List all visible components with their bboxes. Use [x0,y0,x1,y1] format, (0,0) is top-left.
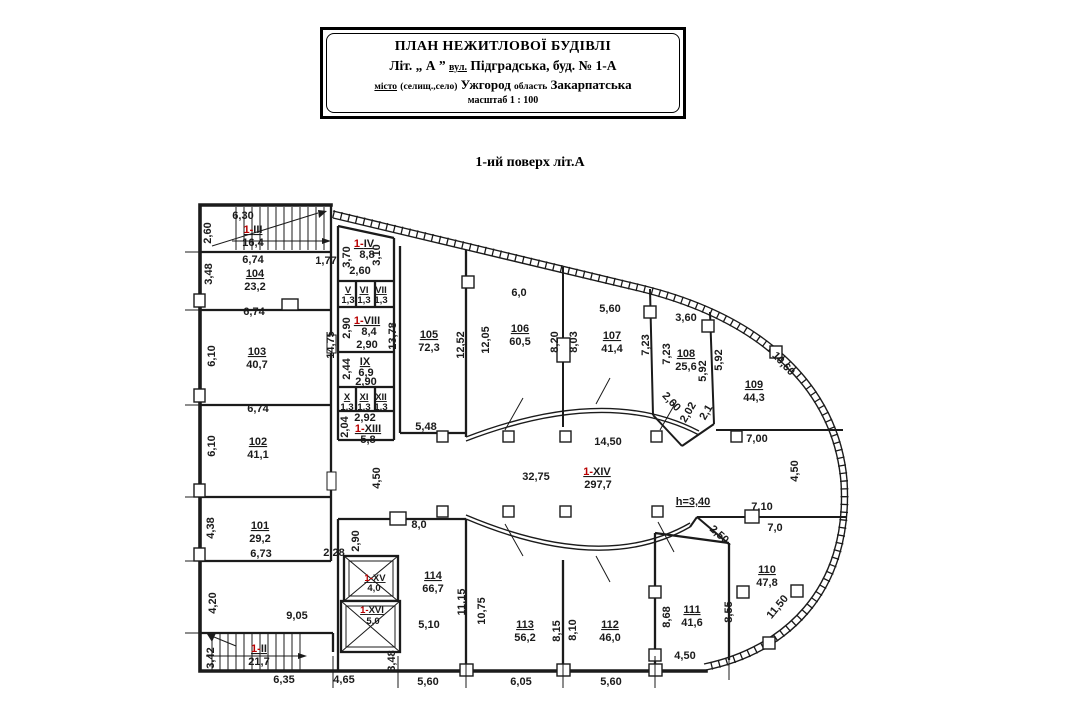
dim-label: 14,75 [325,331,337,359]
room-101-area: 29,2 [249,533,270,545]
cell-v-area: 1,3 [341,295,354,306]
hall-arc-walls [466,408,699,550]
dim-label: 2,90 [341,317,353,338]
column [652,506,663,517]
dim-label: 13,78 [387,322,399,350]
dim-label: 7,00 [746,433,767,445]
ceiling-height-note: h=3,40 [676,496,711,508]
room-106-number: 106 [511,323,529,335]
glazed-facade-lines [333,211,847,670]
dim-label: 8,10 [567,619,579,640]
dim-label: 2,60 [202,222,214,243]
hall-1-xiv-number: 1-XIV [583,466,611,478]
dim-label: 11,50 [764,593,790,621]
stair3-arrow-lines [212,213,322,246]
room-109-number: 109 [745,379,763,391]
dim-label: 32,75 [522,471,550,483]
hall-1-ii-number: 1-II [251,643,267,655]
hall-1-iii-area: 16,4 [242,237,264,249]
room-112-area: 46,0 [599,632,620,644]
room-110-area: 47,8 [756,577,777,589]
column [651,431,662,442]
column [503,506,514,517]
dim-label: 7,0 [767,522,782,534]
dim-label: 4,38 [205,517,217,538]
column [560,431,571,442]
stair3-arrowhead-1 [318,210,327,218]
dim-label: 9,05 [286,610,307,622]
hall-1-xv-area: 4,0 [367,583,380,594]
room-107-number: 107 [603,330,621,342]
stair3-arrowhead-2 [322,238,331,244]
dim-label: 8,03 [568,331,580,352]
dim-label: 7,23 [661,343,673,364]
dim-label: 3,10 [371,244,383,265]
dim-label: 12,05 [480,326,492,354]
hall-1-ii-area: 21,7 [248,656,269,668]
column [437,431,448,442]
wall-pier [702,320,714,332]
dim-label: 7,23 [640,334,652,355]
dim-label: 6,10 [206,345,218,366]
hall-1-xiv-area: 297,7 [584,479,612,491]
dim-label: 14,50 [594,436,622,448]
room-103-number: 103 [248,346,266,358]
room-102-number: 102 [249,436,267,448]
dim-label: 4,65 [333,674,354,686]
room-112-number: 112 [601,619,619,631]
dim-label: 10,75 [476,597,488,625]
dim-label: 4,50 [371,467,383,488]
dim-label: 3,42 [205,647,217,668]
dim-label: 8,68 [661,606,673,627]
cell-vii-area: 1,3 [374,295,387,306]
wall-pier [649,586,661,598]
room-114-number: 114 [424,570,443,582]
wall-pier [194,294,205,307]
dim-label: 6,30 [232,210,253,222]
dim-label: 8,0 [411,519,426,531]
room-113-area: 56,2 [514,632,535,644]
room-101-number: 101 [251,520,269,532]
wall-pier [644,306,656,318]
dim-label: 3,48 [386,650,398,671]
dim-label: 6,74 [243,306,265,318]
room-102-area: 41,1 [247,449,268,461]
hall-1-xiii-area: 5,8 [360,434,375,446]
hall-1-xvi-number: 1-XVI [360,605,384,616]
wall-pier [194,548,205,561]
cell-vi-area: 1,3 [357,295,370,306]
room-104-area: 23,2 [244,281,265,293]
room-108-number: 108 [677,348,695,360]
dim-label: 6,35 [273,674,294,686]
dim-label: 1,77 [315,255,336,267]
page: ПЛАН НЕЖИТЛОВОЇ БУДІВЛІ Літ. „ А ” вул. … [0,0,1083,720]
wall-pier [390,512,406,525]
dim-label: 2,90 [350,530,362,551]
door-opening [327,472,336,490]
room-108-area: 25,6 [675,361,696,373]
room-107-area: 41,4 [601,343,623,355]
room-113-number: 113 [516,619,534,631]
stair2-arrowhead-1 [298,653,307,659]
dim-label: 2,60 [349,265,370,277]
wall-pier [194,484,205,497]
dim-label: 5,60 [417,676,438,688]
room-106-area: 60,5 [509,336,530,348]
dim-label: 3,60 [675,312,696,324]
room-105-area: 72,3 [418,342,439,354]
dim-label: 4,50 [674,650,695,662]
glazed-facade-band [333,214,845,667]
dim-label: 3,48 [203,263,215,284]
wall-pier [737,586,749,598]
dim-label: 5,10 [418,619,439,631]
dim-label: 2,90 [356,339,377,351]
dim-label: 2,44 [341,357,353,379]
dim-label: 2,90 [355,376,376,388]
wall-pier [791,585,803,597]
dim-label: 6,0 [511,287,526,299]
dim-label: 8,20 [549,331,561,352]
dim-label: 4,20 [207,592,219,613]
room-104-number: 104 [246,268,265,280]
cell-xii-area: 1,3 [374,402,387,413]
room-110-number: 110 [758,564,776,576]
dim-label: 5,60 [599,303,620,315]
dim-label: 6,73 [250,548,271,560]
dim-label: 6,74 [242,254,264,266]
room-109-area: 44,3 [743,392,764,404]
dim-label: 6,05 [510,676,531,688]
wall-pier [282,299,298,310]
left-rooms-walls [200,205,331,561]
hall-1-xvi-area: 5,0 [366,616,379,627]
floor-plan-svg: 6,30 1-III 16,4 2,60 6,74 104 23,2 3,48 … [0,0,1083,720]
column [560,506,571,517]
dim-label: 7,10 [751,501,772,513]
room-111-number: 111 [683,604,700,616]
column [437,506,448,517]
dim-label: 8,55 [723,601,735,622]
room-105-number: 105 [420,329,438,341]
dim-label: 2,04 [339,415,351,437]
wall-pier [462,276,474,288]
outer-walls [200,205,706,671]
column [731,431,742,442]
wall-pier [763,637,775,649]
hall-1-viii-area: 8,4 [361,326,377,338]
room-114-area: 66,7 [422,583,443,595]
hall-1-iii-number: 1-III [244,224,263,236]
wall-pier [194,389,205,402]
dim-label: 11,15 [456,589,468,616]
dim-label: 12,52 [455,331,467,359]
column [503,431,514,442]
dim-label: 6,74 [247,403,269,415]
dim-label: 5,92 [697,360,709,381]
dim-label: 4,50 [789,460,801,481]
room-111-area: 41,6 [681,617,702,629]
dim-label: 2,60 [660,390,683,414]
dim-label: 8,15 [551,620,563,641]
dim-label: 5,60 [600,676,621,688]
room-103-area: 40,7 [246,359,267,371]
cell-x-area: 1,3 [340,402,353,413]
dim-label: 5,48 [415,421,436,433]
dim-label: 2,28 [323,547,344,559]
dim-label: 6,10 [206,435,218,456]
dim-label: 5,92 [713,349,725,370]
